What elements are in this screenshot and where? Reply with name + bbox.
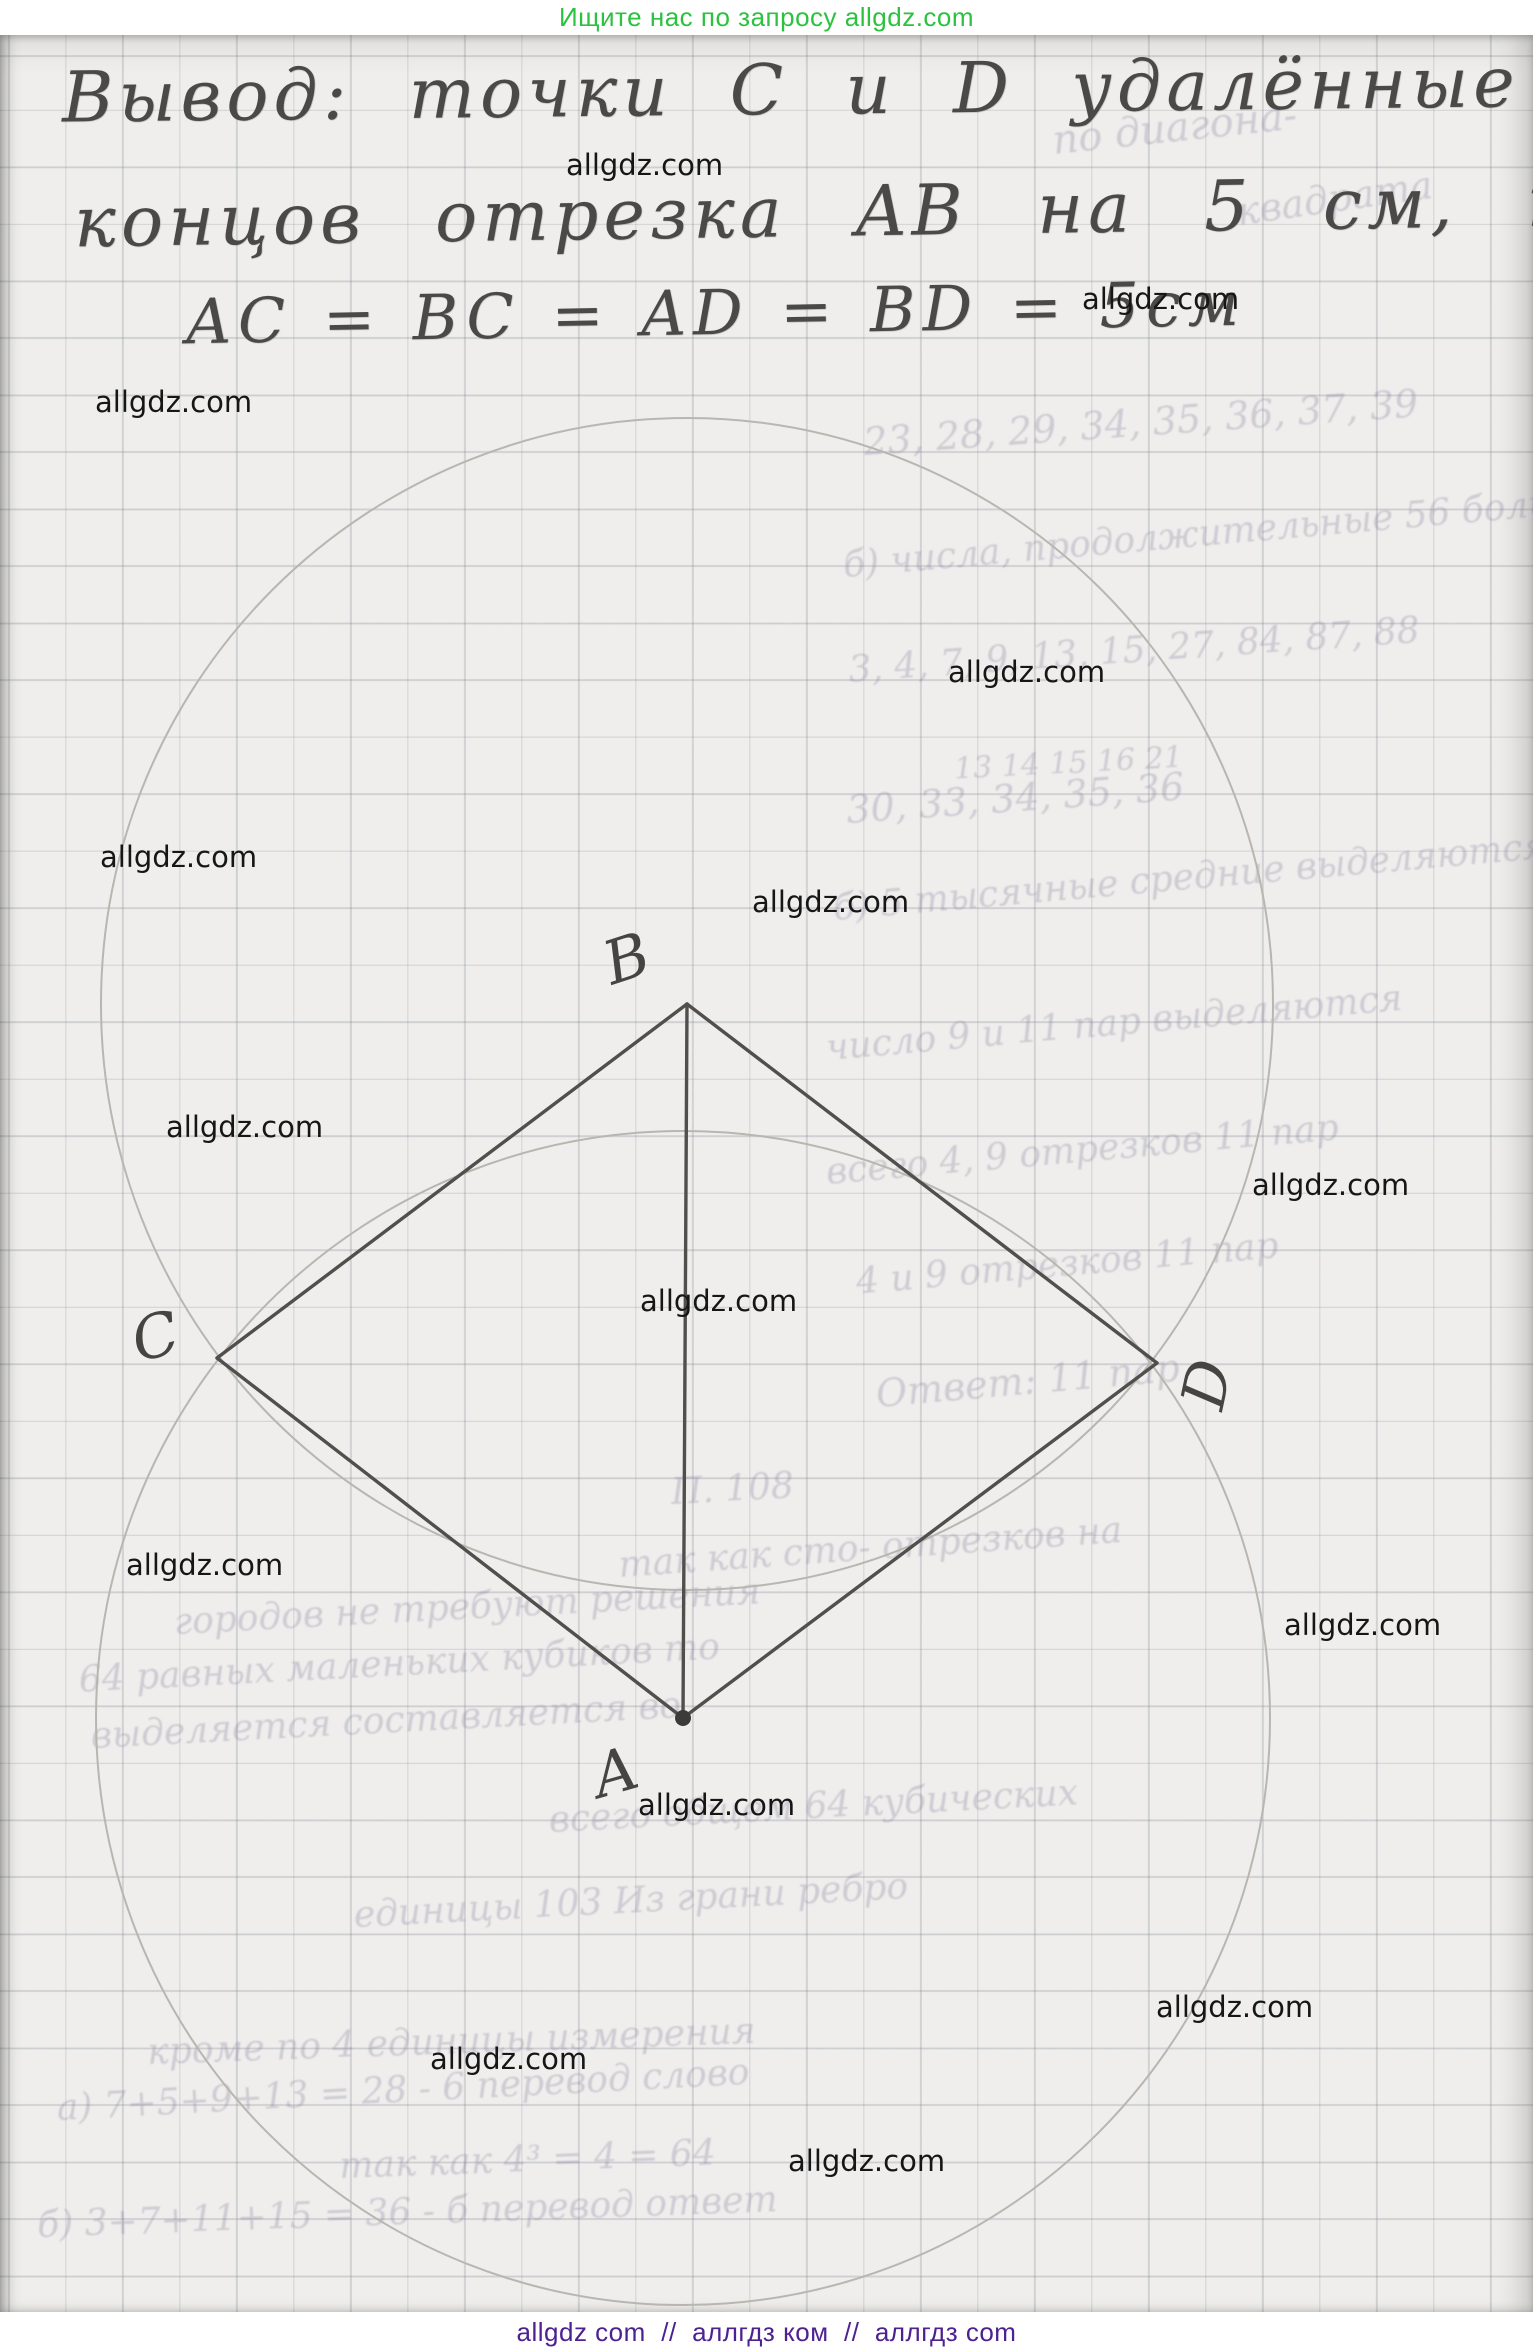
label-A: A [580, 1733, 646, 1814]
header-banner: Ищите нас по запросу allgdz.com [0, 0, 1533, 35]
footer-domains: allgdz com // аллгдз ком // аллгдз com [517, 2317, 1017, 2348]
geometry-figure: BCDA [0, 0, 1533, 2352]
header-search-hint: Ищите нас по запросу allgdz.com [559, 2, 974, 33]
label-C: C [125, 1298, 186, 1377]
segment-BC [217, 1004, 687, 1358]
label-B: B [594, 919, 659, 1000]
point-A-dot [675, 1710, 691, 1726]
segment-DA [683, 1363, 1157, 1718]
segment-BA [683, 1004, 687, 1718]
segment-BD [687, 1004, 1157, 1363]
footer-banner: allgdz com // аллгдз ком // аллгдз com [0, 2312, 1533, 2352]
segment-CA [217, 1358, 683, 1718]
